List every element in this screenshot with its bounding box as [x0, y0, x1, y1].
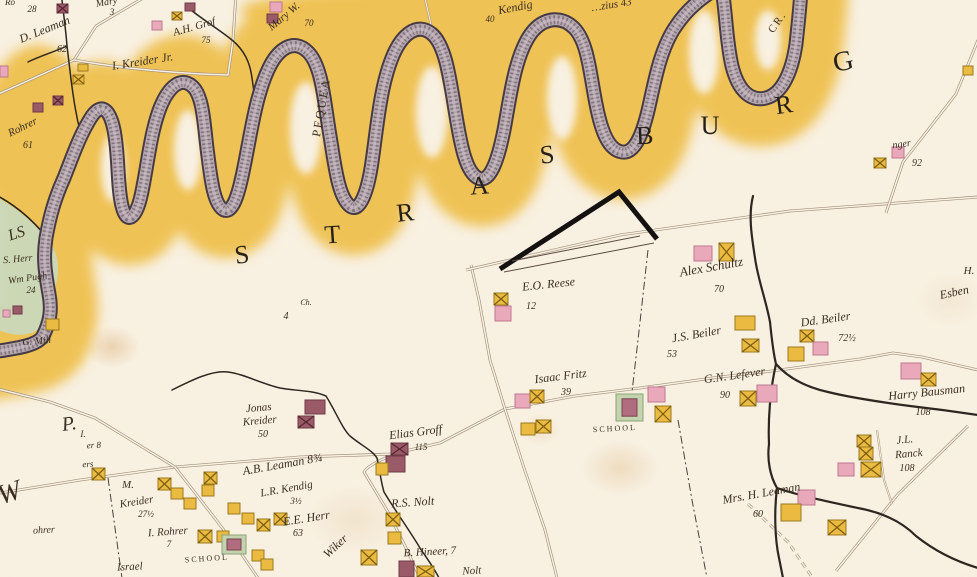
building-marker — [0, 66, 8, 77]
house-symbol — [270, 2, 282, 12]
township-letter: B — [636, 121, 654, 151]
building-marker — [204, 472, 217, 484]
map-label: Dd. Beiler — [799, 309, 852, 330]
map-label: M. — [121, 479, 134, 491]
school-building — [622, 399, 637, 416]
map-label: 12 — [526, 301, 536, 312]
map-label: 50 — [258, 429, 268, 440]
building-marker — [874, 158, 886, 168]
building-marker — [270, 2, 282, 12]
map-label: 4 — [284, 311, 289, 322]
map-label: J.S. Beiler — [671, 323, 723, 345]
building-marker — [515, 394, 530, 408]
house-symbol — [386, 456, 405, 472]
map-label: SCHOOL — [185, 552, 230, 564]
building-marker — [757, 385, 777, 402]
house-symbol — [184, 498, 196, 509]
map-label: 108 — [900, 463, 915, 474]
map-label: Harry Bausman — [887, 381, 966, 403]
building-marker — [735, 316, 755, 330]
house-symbol — [228, 503, 240, 514]
building-marker — [536, 420, 551, 433]
building-marker — [740, 391, 756, 406]
map-label: Ro — [4, 0, 15, 7]
map-label: 40 — [486, 14, 496, 24]
township-letter: A — [469, 170, 490, 200]
map-label: 3½ — [289, 496, 302, 506]
building-marker — [800, 330, 814, 342]
map-label: J.L. — [896, 433, 913, 446]
map-label: Esben — [937, 282, 970, 302]
map-label: 63 — [293, 528, 303, 539]
map-label: 28 — [28, 4, 38, 14]
township-letter: R — [395, 197, 416, 228]
map-label: E.O. Reese — [521, 274, 577, 294]
building-marker — [228, 503, 240, 514]
map-label: 62 — [57, 44, 67, 55]
house-symbol — [521, 423, 535, 435]
building-marker — [386, 456, 405, 472]
building-marker — [222, 535, 246, 554]
map-label: G.N. Lefever — [703, 364, 766, 386]
map-label: 70 — [305, 18, 315, 28]
house-symbol — [305, 400, 325, 414]
map-label: Nolt — [461, 564, 482, 577]
map-label: Mrs. H. Leaman — [720, 479, 801, 507]
map-label: 92 — [912, 158, 922, 169]
map-label: nger — [892, 138, 912, 151]
map-label: 70 — [714, 284, 724, 295]
building-marker — [530, 390, 544, 403]
atlas-map-canvas: Ro28Mary3D. Leaman62A.H. Grof75Mary W.70… — [0, 0, 977, 577]
building-marker — [261, 559, 273, 570]
building-marker — [616, 394, 643, 421]
house-symbol — [13, 306, 22, 314]
house-symbol — [46, 319, 59, 330]
house-symbol — [33, 103, 43, 112]
building-marker — [33, 103, 43, 112]
map-label: D. Leaman — [16, 13, 72, 46]
building-marker — [838, 463, 854, 476]
map-label: B. Hineer, 7 — [403, 545, 457, 560]
map-label: 39 — [560, 387, 571, 398]
house-symbol — [495, 306, 511, 321]
building-marker — [361, 550, 377, 565]
house-symbol — [3, 310, 10, 317]
house-symbol — [735, 316, 755, 330]
building-marker — [417, 566, 434, 577]
building-marker — [399, 561, 414, 577]
house-symbol — [963, 66, 973, 75]
house-symbol — [152, 21, 162, 30]
map-label: 3 — [109, 7, 115, 17]
map-label: A.B. Leaman 8¾ — [241, 450, 324, 478]
building-marker — [521, 423, 535, 435]
building-marker — [171, 488, 183, 499]
building-marker — [648, 387, 665, 402]
map-label: 7 — [167, 539, 172, 549]
building-marker — [198, 530, 212, 543]
building-marker — [813, 342, 828, 355]
building-marker — [391, 443, 408, 455]
building-marker — [495, 306, 511, 321]
map-label: 53 — [667, 349, 677, 360]
house-symbol — [242, 513, 254, 524]
building-marker — [305, 400, 325, 414]
map-drawing: Ro28Mary3D. Leaman62A.H. Grof75Mary W.70… — [0, 0, 977, 577]
building-marker — [298, 416, 314, 428]
map-label: Ch. — [300, 298, 311, 307]
building-marker — [861, 462, 881, 477]
building-marker — [257, 519, 270, 531]
map-label: Jonas — [245, 401, 272, 415]
building-marker — [13, 306, 22, 314]
map-label: ohrer — [33, 524, 56, 536]
building-marker — [185, 3, 195, 11]
building-marker — [859, 447, 873, 460]
map-label: 61 — [23, 140, 33, 151]
building-marker — [172, 12, 182, 20]
map-label: Isaac Fritz — [533, 366, 588, 386]
building-marker — [53, 96, 63, 105]
map-label: Wiker — [320, 531, 350, 561]
house-symbol — [171, 488, 183, 499]
building-marker — [242, 513, 254, 524]
map-label: Mary — [94, 0, 119, 10]
house-symbol — [781, 504, 801, 521]
map-label: 24 — [27, 285, 37, 295]
building-marker — [3, 310, 10, 317]
house-symbol — [261, 559, 273, 570]
map-label: 108 — [916, 407, 931, 418]
map-label: P. — [59, 412, 78, 436]
house-symbol — [202, 485, 214, 496]
building-marker — [152, 21, 162, 30]
building-marker — [158, 478, 171, 490]
map-label: 115 — [415, 442, 428, 452]
house-symbol — [515, 394, 530, 408]
map-label: Kreider — [241, 413, 277, 428]
building-marker — [828, 520, 846, 535]
house-symbol — [0, 66, 8, 77]
map-label: I. — [79, 429, 85, 439]
map-label: 90 — [720, 390, 730, 401]
map-label: Ranck — [894, 447, 925, 462]
building-marker — [92, 468, 105, 480]
map-label: I. Rohrer — [146, 525, 188, 540]
house-symbol — [838, 463, 854, 476]
house-symbol — [901, 363, 921, 379]
building-marker — [742, 339, 759, 352]
building-marker — [963, 66, 973, 75]
township-letter: S — [538, 139, 555, 169]
building-marker — [494, 293, 508, 305]
building-marker — [73, 75, 84, 84]
house-symbol — [648, 387, 665, 402]
map-label: W — [0, 474, 28, 512]
house-symbol — [813, 342, 828, 355]
map-label: E.E. Herr — [281, 507, 331, 528]
house-symbol — [185, 3, 195, 11]
map-label: Elias Groff — [387, 422, 444, 443]
house-symbol — [78, 64, 88, 71]
building-marker — [78, 64, 88, 71]
building-marker — [184, 498, 196, 509]
map-label: 60 — [753, 509, 763, 520]
map-label: ers — [82, 459, 94, 470]
map-label: Israel — [116, 560, 143, 573]
building-marker — [781, 504, 801, 521]
map-label: 72½ — [838, 333, 856, 344]
map-label: er 8 — [86, 440, 101, 451]
map-label: 75 — [202, 35, 212, 45]
school-building — [227, 539, 241, 550]
building-marker — [857, 435, 871, 447]
map-label: H. — [963, 265, 975, 277]
house-symbol — [788, 347, 804, 361]
map-label: 27½ — [138, 509, 154, 519]
township-letter: U — [701, 111, 720, 140]
house-symbol — [376, 463, 388, 475]
building-marker — [655, 406, 671, 422]
building-marker — [376, 463, 388, 475]
house-symbol — [757, 385, 777, 402]
house-symbol — [388, 532, 401, 544]
building-marker — [46, 319, 59, 330]
building-marker — [202, 485, 214, 496]
map-label: L.R. Kendig — [258, 478, 314, 499]
township-letter: T — [323, 219, 341, 249]
building-marker — [901, 363, 921, 379]
building-marker — [386, 513, 400, 526]
map-label: SCHOOL — [593, 423, 637, 434]
map-label: R.S. Nolt — [390, 493, 436, 510]
building-marker — [788, 347, 804, 361]
building-marker — [57, 4, 68, 13]
house-symbol — [399, 561, 414, 577]
building-marker — [388, 532, 401, 544]
